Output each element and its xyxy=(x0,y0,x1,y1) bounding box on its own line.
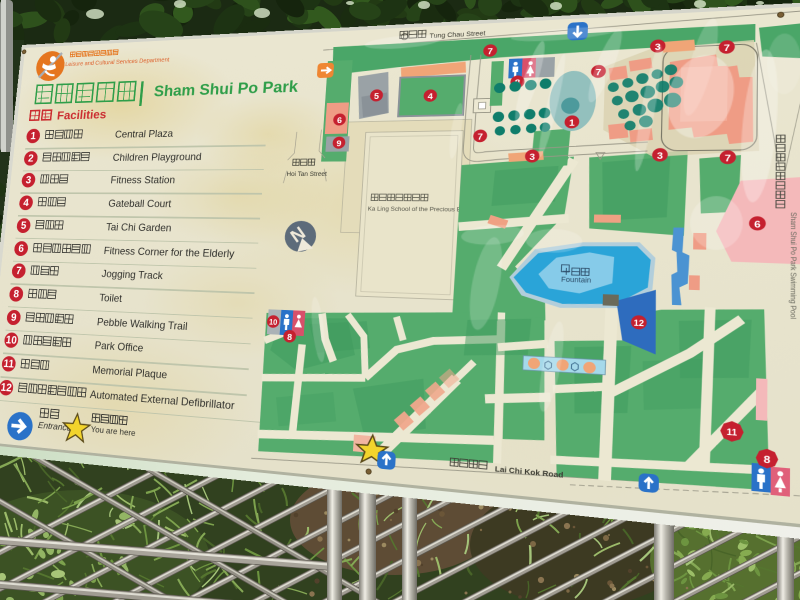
svg-text:Hoi Tan Street: Hoi Tan Street xyxy=(286,171,327,178)
svg-text:10: 10 xyxy=(269,320,278,328)
svg-text:7: 7 xyxy=(487,47,493,57)
svg-text:Lai Chi Kok Road: Lai Chi Kok Road xyxy=(495,466,565,481)
svg-text:1: 1 xyxy=(569,118,575,128)
svg-text:11: 11 xyxy=(727,429,739,439)
svg-text:7: 7 xyxy=(724,43,730,54)
svg-text:9: 9 xyxy=(336,139,342,149)
svg-text:8: 8 xyxy=(764,454,771,467)
svg-text:5: 5 xyxy=(374,92,380,102)
svg-text:8: 8 xyxy=(287,332,293,342)
svg-text:12: 12 xyxy=(634,320,646,329)
svg-text:Fountain: Fountain xyxy=(561,276,592,285)
svg-text:Ka Ling School of the Precious: Ka Ling School of the Precious Blood xyxy=(367,206,474,214)
svg-text:6: 6 xyxy=(754,219,761,230)
svg-text:3: 3 xyxy=(657,151,663,162)
svg-text:Sham Shui Po Park Swimming Poo: Sham Shui Po Park Swimming Pool xyxy=(789,212,798,319)
svg-text:6: 6 xyxy=(337,116,343,126)
svg-text:4: 4 xyxy=(427,92,433,102)
svg-text:3: 3 xyxy=(529,152,535,162)
svg-text:7: 7 xyxy=(477,132,483,142)
svg-text:7: 7 xyxy=(725,153,732,164)
